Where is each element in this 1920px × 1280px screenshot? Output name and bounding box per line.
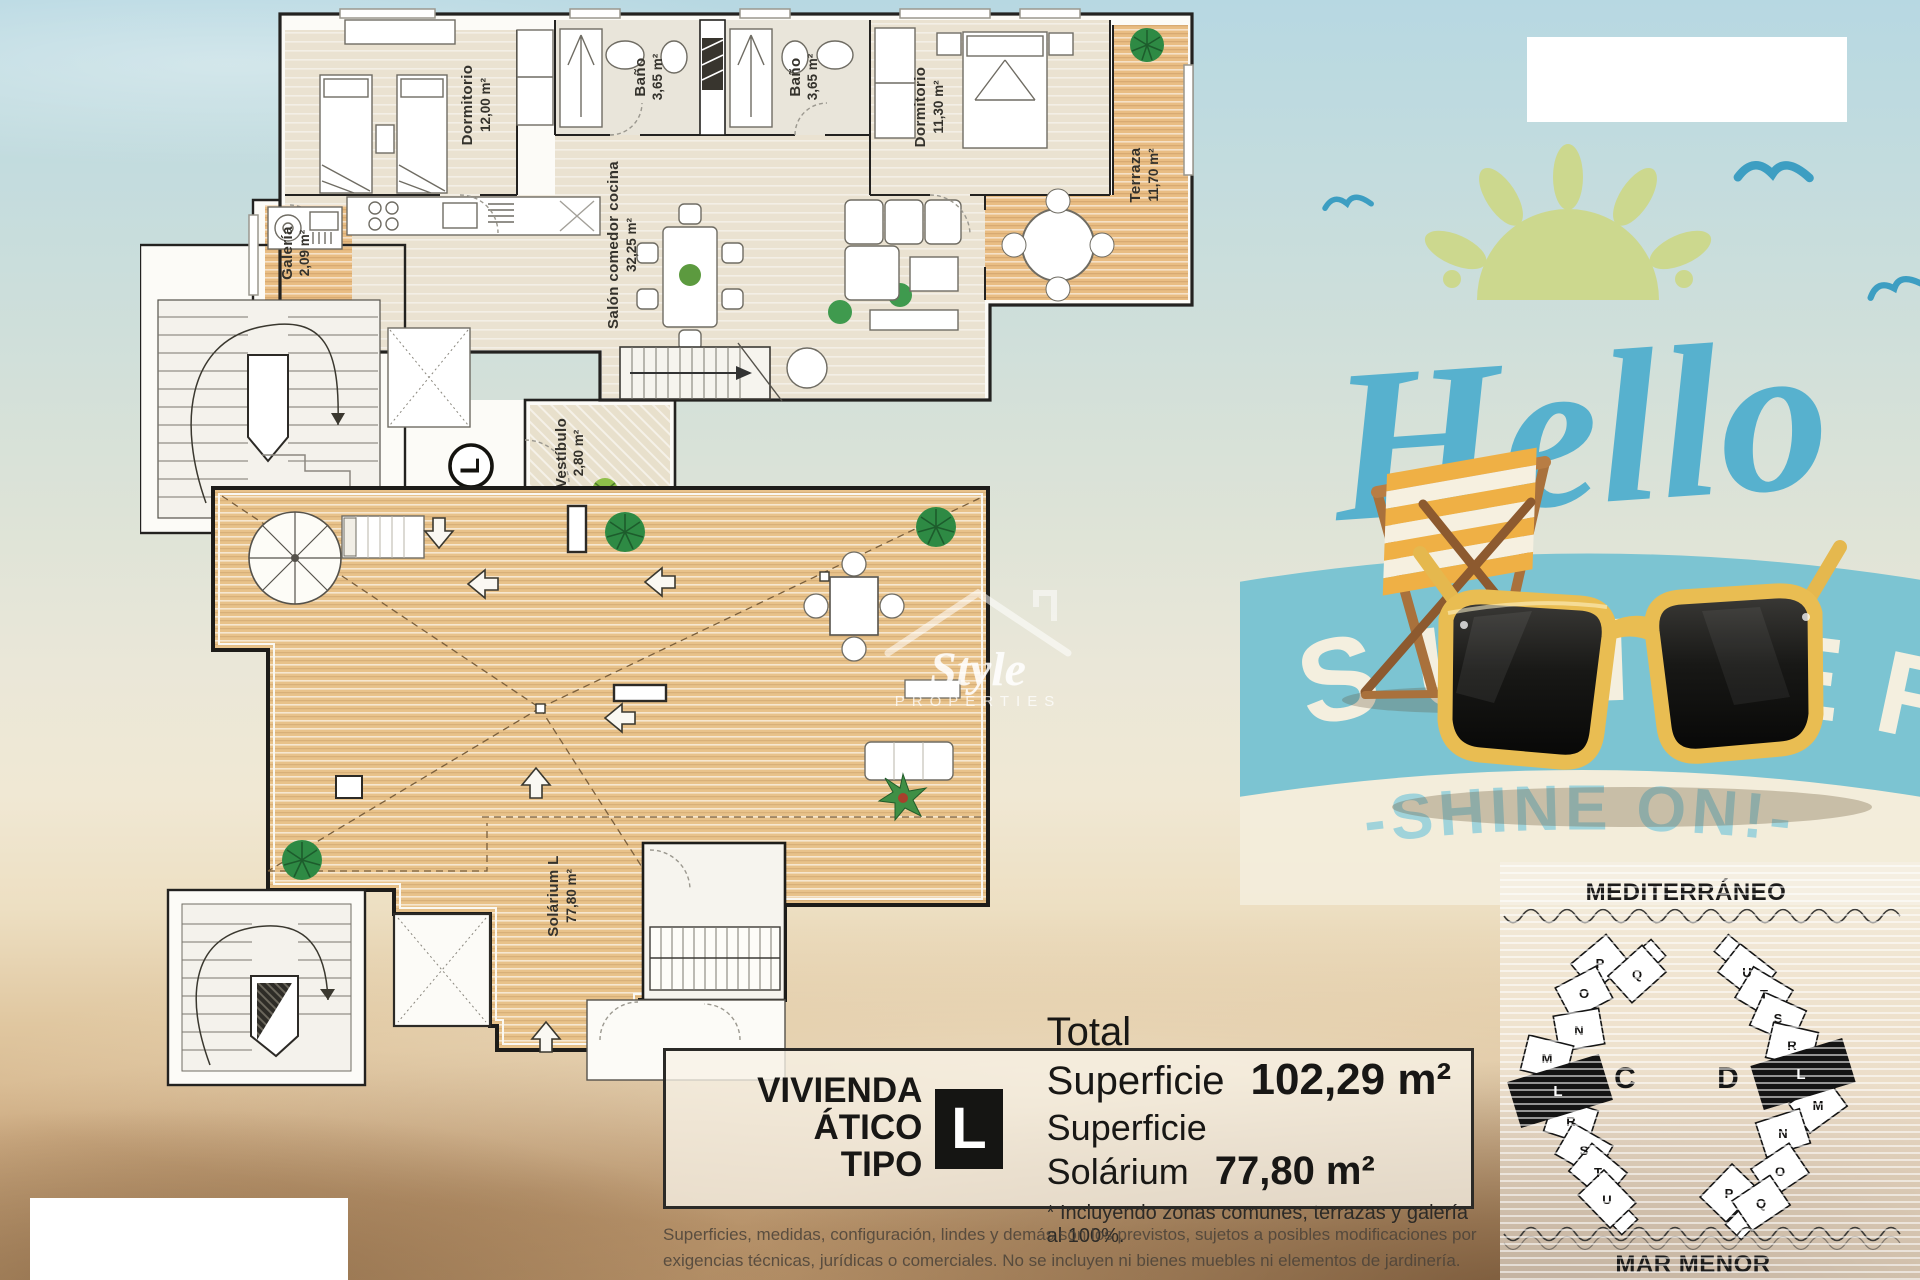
ridge-node bbox=[820, 572, 829, 581]
common-stairwell-lower bbox=[168, 890, 365, 1085]
plant bbox=[605, 512, 645, 552]
waves-top bbox=[1504, 910, 1900, 923]
solarium-surface-value: 77,80 m² bbox=[1215, 1149, 1375, 1193]
logo-placeholder-bottom-left bbox=[30, 1198, 348, 1280]
unit-letter: T bbox=[1760, 987, 1768, 1002]
unit-letter: M bbox=[1813, 1098, 1824, 1113]
disclaimer-line2: exigencias técnicas, jurídicas o comerci… bbox=[663, 1248, 1493, 1274]
unit-letter: R bbox=[1787, 1038, 1797, 1053]
unit-letter: P bbox=[1596, 956, 1605, 971]
unit-letter: O bbox=[1579, 986, 1589, 1001]
unit-marker-letter: L bbox=[455, 458, 485, 475]
parasol bbox=[249, 512, 341, 604]
label-dorm2-area: 11,30 m² bbox=[931, 80, 946, 134]
sun-lounger bbox=[342, 516, 424, 558]
upper-floor-plan: L Dormitorio 12,00 m² Baño 3,65 m² Baño … bbox=[140, 5, 1200, 535]
plant bbox=[916, 507, 956, 547]
label-dorm2: Dormitorio bbox=[912, 67, 929, 148]
building-block-d: U T S R L M N O Q P D bbox=[1700, 935, 1856, 1240]
bedroom2-furniture bbox=[875, 28, 1073, 148]
total-surface-value: 102,29 m² bbox=[1251, 1055, 1452, 1104]
dwelling-title-line1: VIVIENDA bbox=[754, 1073, 922, 1110]
skylight bbox=[614, 685, 666, 701]
unit-letter: N bbox=[1574, 1023, 1583, 1038]
unit-letter: U bbox=[1602, 1192, 1611, 1207]
label-vestibulo-area: 2,80 m² bbox=[571, 429, 586, 476]
stair-house bbox=[643, 843, 785, 1000]
summer-artwork: S U M M E R -SHINE ON!- Hello bbox=[1240, 115, 1920, 905]
unit-letter: N bbox=[1778, 1126, 1787, 1141]
dwelling-title-line2: ÁTICO TIPO bbox=[754, 1110, 922, 1184]
interior-stairs bbox=[620, 343, 782, 401]
label-vestibulo: Vestíbulo bbox=[553, 418, 570, 488]
waves-bottom bbox=[1504, 1228, 1900, 1241]
total-surface-label: Total Superficie bbox=[1047, 1010, 1225, 1103]
info-box: VIVIENDA ÁTICO TIPO L Total Superficie10… bbox=[663, 1048, 1474, 1209]
label-terrace: Terraza bbox=[1127, 147, 1144, 202]
unit-letter: S bbox=[1774, 1011, 1783, 1026]
label-salon: Salón comedor cocina bbox=[605, 161, 622, 329]
surface-data: Total Superficie102,29 m² Superficie Sol… bbox=[1047, 1010, 1471, 1248]
label-bath2: Baño bbox=[787, 57, 804, 96]
dwelling-title: VIVIENDA ÁTICO TIPO bbox=[754, 1073, 922, 1183]
label-bath2-area: 3,65 m² bbox=[805, 53, 820, 100]
unit-letter: S bbox=[1580, 1143, 1589, 1158]
block-c-label: C bbox=[1614, 1062, 1636, 1095]
elevator-shaft bbox=[394, 914, 490, 1026]
highlighted-unit-l bbox=[1750, 1038, 1855, 1110]
label-galeria-area: 2,09 m² bbox=[297, 229, 312, 276]
label-dorm1-area: 12,00 m² bbox=[478, 77, 493, 132]
label-salon-area: 32,25 m² bbox=[624, 217, 639, 272]
label-bath1: Baño bbox=[632, 57, 649, 96]
building-block-c: P Q O N M L R S T U C bbox=[1507, 934, 1666, 1234]
label-galeria: Galería bbox=[279, 226, 296, 280]
skylight bbox=[568, 506, 586, 552]
waves-bottom-2 bbox=[1504, 1237, 1900, 1250]
label-solarium-area: 77,80 m² bbox=[564, 868, 579, 923]
unit-letter: O bbox=[1775, 1164, 1785, 1179]
label-dorm1: Dormitorio bbox=[459, 65, 476, 146]
legal-disclaimer: Superficies, medidas, configuración, lin… bbox=[663, 1222, 1493, 1273]
logo-placeholder-top-right bbox=[1527, 37, 1847, 122]
solarium-surface-label: Superficie Solárium bbox=[1047, 1107, 1207, 1192]
highlighted-unit-l bbox=[1507, 1054, 1613, 1128]
unit-letter: R bbox=[1566, 1114, 1576, 1129]
label-bath1-area: 3,65 m² bbox=[650, 53, 665, 100]
label-terrace-area: 11,70 m² bbox=[1146, 148, 1161, 202]
unit-letter: Q bbox=[1756, 1196, 1766, 1211]
type-letter: L bbox=[951, 1095, 986, 1162]
ridge-node bbox=[536, 704, 545, 713]
type-letter-badge: L bbox=[935, 1089, 1002, 1169]
unit-letter: P bbox=[1725, 1186, 1734, 1201]
solarium-floor-plan: Solárium L 77,80 m² bbox=[130, 480, 1010, 1105]
plant bbox=[282, 840, 322, 880]
poster: L Dormitorio 12,00 m² Baño 3,65 m² Baño … bbox=[0, 0, 1920, 1280]
sea-label-bottom: MAR MENOR bbox=[1615, 1251, 1770, 1278]
unit-letter: M bbox=[1542, 1051, 1553, 1066]
unit-letter: U bbox=[1742, 965, 1751, 980]
block-d-label: D bbox=[1717, 1062, 1739, 1095]
unit-letter-l: L bbox=[1796, 1066, 1805, 1083]
unit-letter: Q bbox=[1632, 967, 1642, 982]
unit-letter-l: L bbox=[1553, 1083, 1562, 1100]
disclaimer-line1: Superficies, medidas, configuración, lin… bbox=[663, 1222, 1493, 1248]
kitchen-counter bbox=[347, 197, 600, 235]
unit-letter: T bbox=[1594, 1165, 1602, 1180]
skylight bbox=[336, 776, 362, 798]
label-solarium: Solárium L bbox=[545, 855, 562, 937]
sun-icon bbox=[1419, 144, 1716, 300]
site-plan-drawing: MEDITERRÁNEO P Q O bbox=[1500, 862, 1920, 1280]
site-plan: MEDITERRÁNEO P Q O bbox=[1500, 862, 1920, 1280]
sea-label-top: MEDITERRÁNEO bbox=[1586, 878, 1787, 906]
